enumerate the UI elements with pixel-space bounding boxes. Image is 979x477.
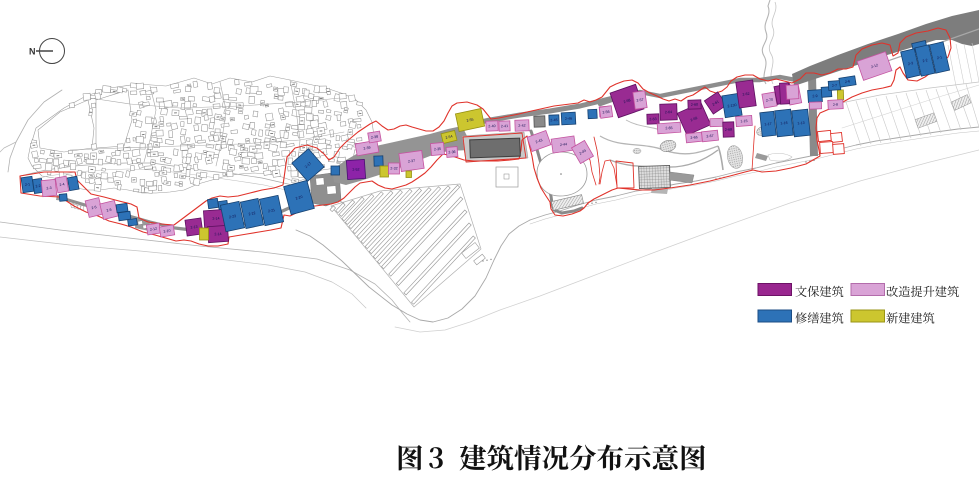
svg-text:2-64: 2-64 xyxy=(665,110,672,114)
svg-text:2-67: 2-67 xyxy=(706,134,714,139)
svg-text:2-63: 2-63 xyxy=(649,117,656,121)
svg-text:2-7: 2-7 xyxy=(832,84,837,88)
svg-text:2-36: 2-36 xyxy=(448,150,456,155)
svg-text:2-6: 2-6 xyxy=(845,79,851,84)
svg-text:1-16: 1-16 xyxy=(780,121,788,126)
svg-text:2-60: 2-60 xyxy=(691,103,698,107)
svg-text:2-52: 2-52 xyxy=(352,167,359,171)
svg-text:2-8: 2-8 xyxy=(833,103,838,107)
svg-text:2-1: 2-1 xyxy=(25,182,31,187)
svg-text:2-41: 2-41 xyxy=(501,124,508,128)
svg-text:2-46: 2-46 xyxy=(565,117,572,121)
svg-text:2-66: 2-66 xyxy=(690,135,698,140)
svg-text:2-14: 2-14 xyxy=(212,216,219,220)
svg-text:N: N xyxy=(29,47,36,57)
svg-text:2-2: 2-2 xyxy=(35,184,41,189)
svg-text:1-15: 1-15 xyxy=(740,119,747,123)
svg-text:2-65: 2-65 xyxy=(665,126,672,130)
svg-text:1-17: 1-17 xyxy=(764,122,772,127)
svg-text:2-40: 2-40 xyxy=(488,124,495,128)
svg-text:2-9: 2-9 xyxy=(812,94,817,98)
svg-text:2-14: 2-14 xyxy=(214,232,221,236)
svg-text:1-13: 1-13 xyxy=(797,121,805,126)
svg-text:2-42: 2-42 xyxy=(518,124,525,128)
svg-text:2-68: 2-68 xyxy=(725,128,732,132)
svg-text:2-32: 2-32 xyxy=(390,167,397,171)
svg-text:2-45: 2-45 xyxy=(550,118,557,122)
svg-text:2-35: 2-35 xyxy=(434,147,442,152)
svg-text:2-3: 2-3 xyxy=(46,186,52,191)
